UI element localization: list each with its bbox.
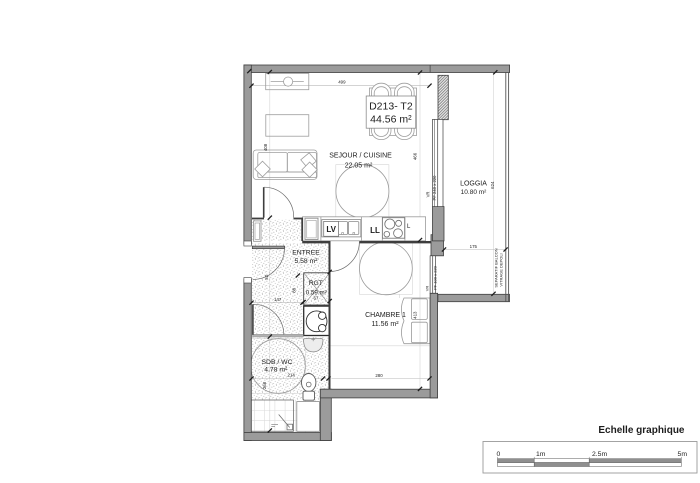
svg-text:266: 266 [262, 381, 267, 389]
svg-text:1m: 1m [536, 451, 546, 458]
svg-text:413: 413 [413, 311, 418, 319]
svg-text:LL: LL [370, 226, 380, 235]
svg-text:SEJOUR / CUISINE: SEJOUR / CUISINE [329, 152, 392, 159]
svg-text:VR: VR [426, 192, 431, 198]
svg-text:LV: LV [326, 225, 336, 234]
svg-text:5.58 m²: 5.58 m² [294, 258, 318, 265]
svg-text:22.05 m²: 22.05 m² [345, 162, 373, 169]
svg-text:147: 147 [274, 297, 282, 302]
svg-text:VITRAGE DEPOLI: VITRAGE DEPOLI [499, 253, 504, 286]
svg-text:4.78 m²: 4.78 m² [264, 367, 288, 374]
svg-text:ENTREE: ENTREE [292, 250, 320, 257]
svg-text:214: 214 [288, 373, 296, 378]
svg-text:D213- T2: D213- T2 [369, 100, 413, 112]
svg-text:RGT: RGT [309, 280, 323, 287]
svg-text:5m: 5m [678, 451, 688, 458]
svg-text:PF 240 x 220: PF 240 x 220 [432, 175, 437, 201]
svg-text:CHAMBRE 1: CHAMBRE 1 [365, 312, 406, 319]
svg-text:LOGGIA: LOGGIA [460, 181, 487, 188]
svg-text:PF 100 x 220: PF 100 x 220 [432, 265, 437, 290]
svg-text:175: 175 [470, 244, 478, 249]
svg-text:466: 466 [413, 152, 418, 160]
svg-text:624: 624 [490, 181, 495, 189]
svg-text:Echelle graphique: Echelle graphique [598, 425, 685, 436]
svg-text:67: 67 [314, 295, 319, 300]
svg-text:VR: VR [424, 286, 429, 292]
svg-text:11.56 m²: 11.56 m² [371, 321, 399, 328]
svg-text:280: 280 [375, 373, 383, 378]
svg-text:10.80 m²: 10.80 m² [461, 189, 487, 196]
svg-text:408: 408 [263, 143, 268, 151]
svg-text:499: 499 [338, 79, 346, 84]
svg-text:52: 52 [264, 274, 269, 279]
svg-text:44.56 m²: 44.56 m² [370, 114, 412, 126]
svg-text:0: 0 [497, 451, 501, 458]
svg-text:SDB / WC: SDB / WC [262, 359, 293, 366]
svg-text:2.5m: 2.5m [592, 451, 607, 458]
svg-text:88: 88 [291, 287, 296, 292]
